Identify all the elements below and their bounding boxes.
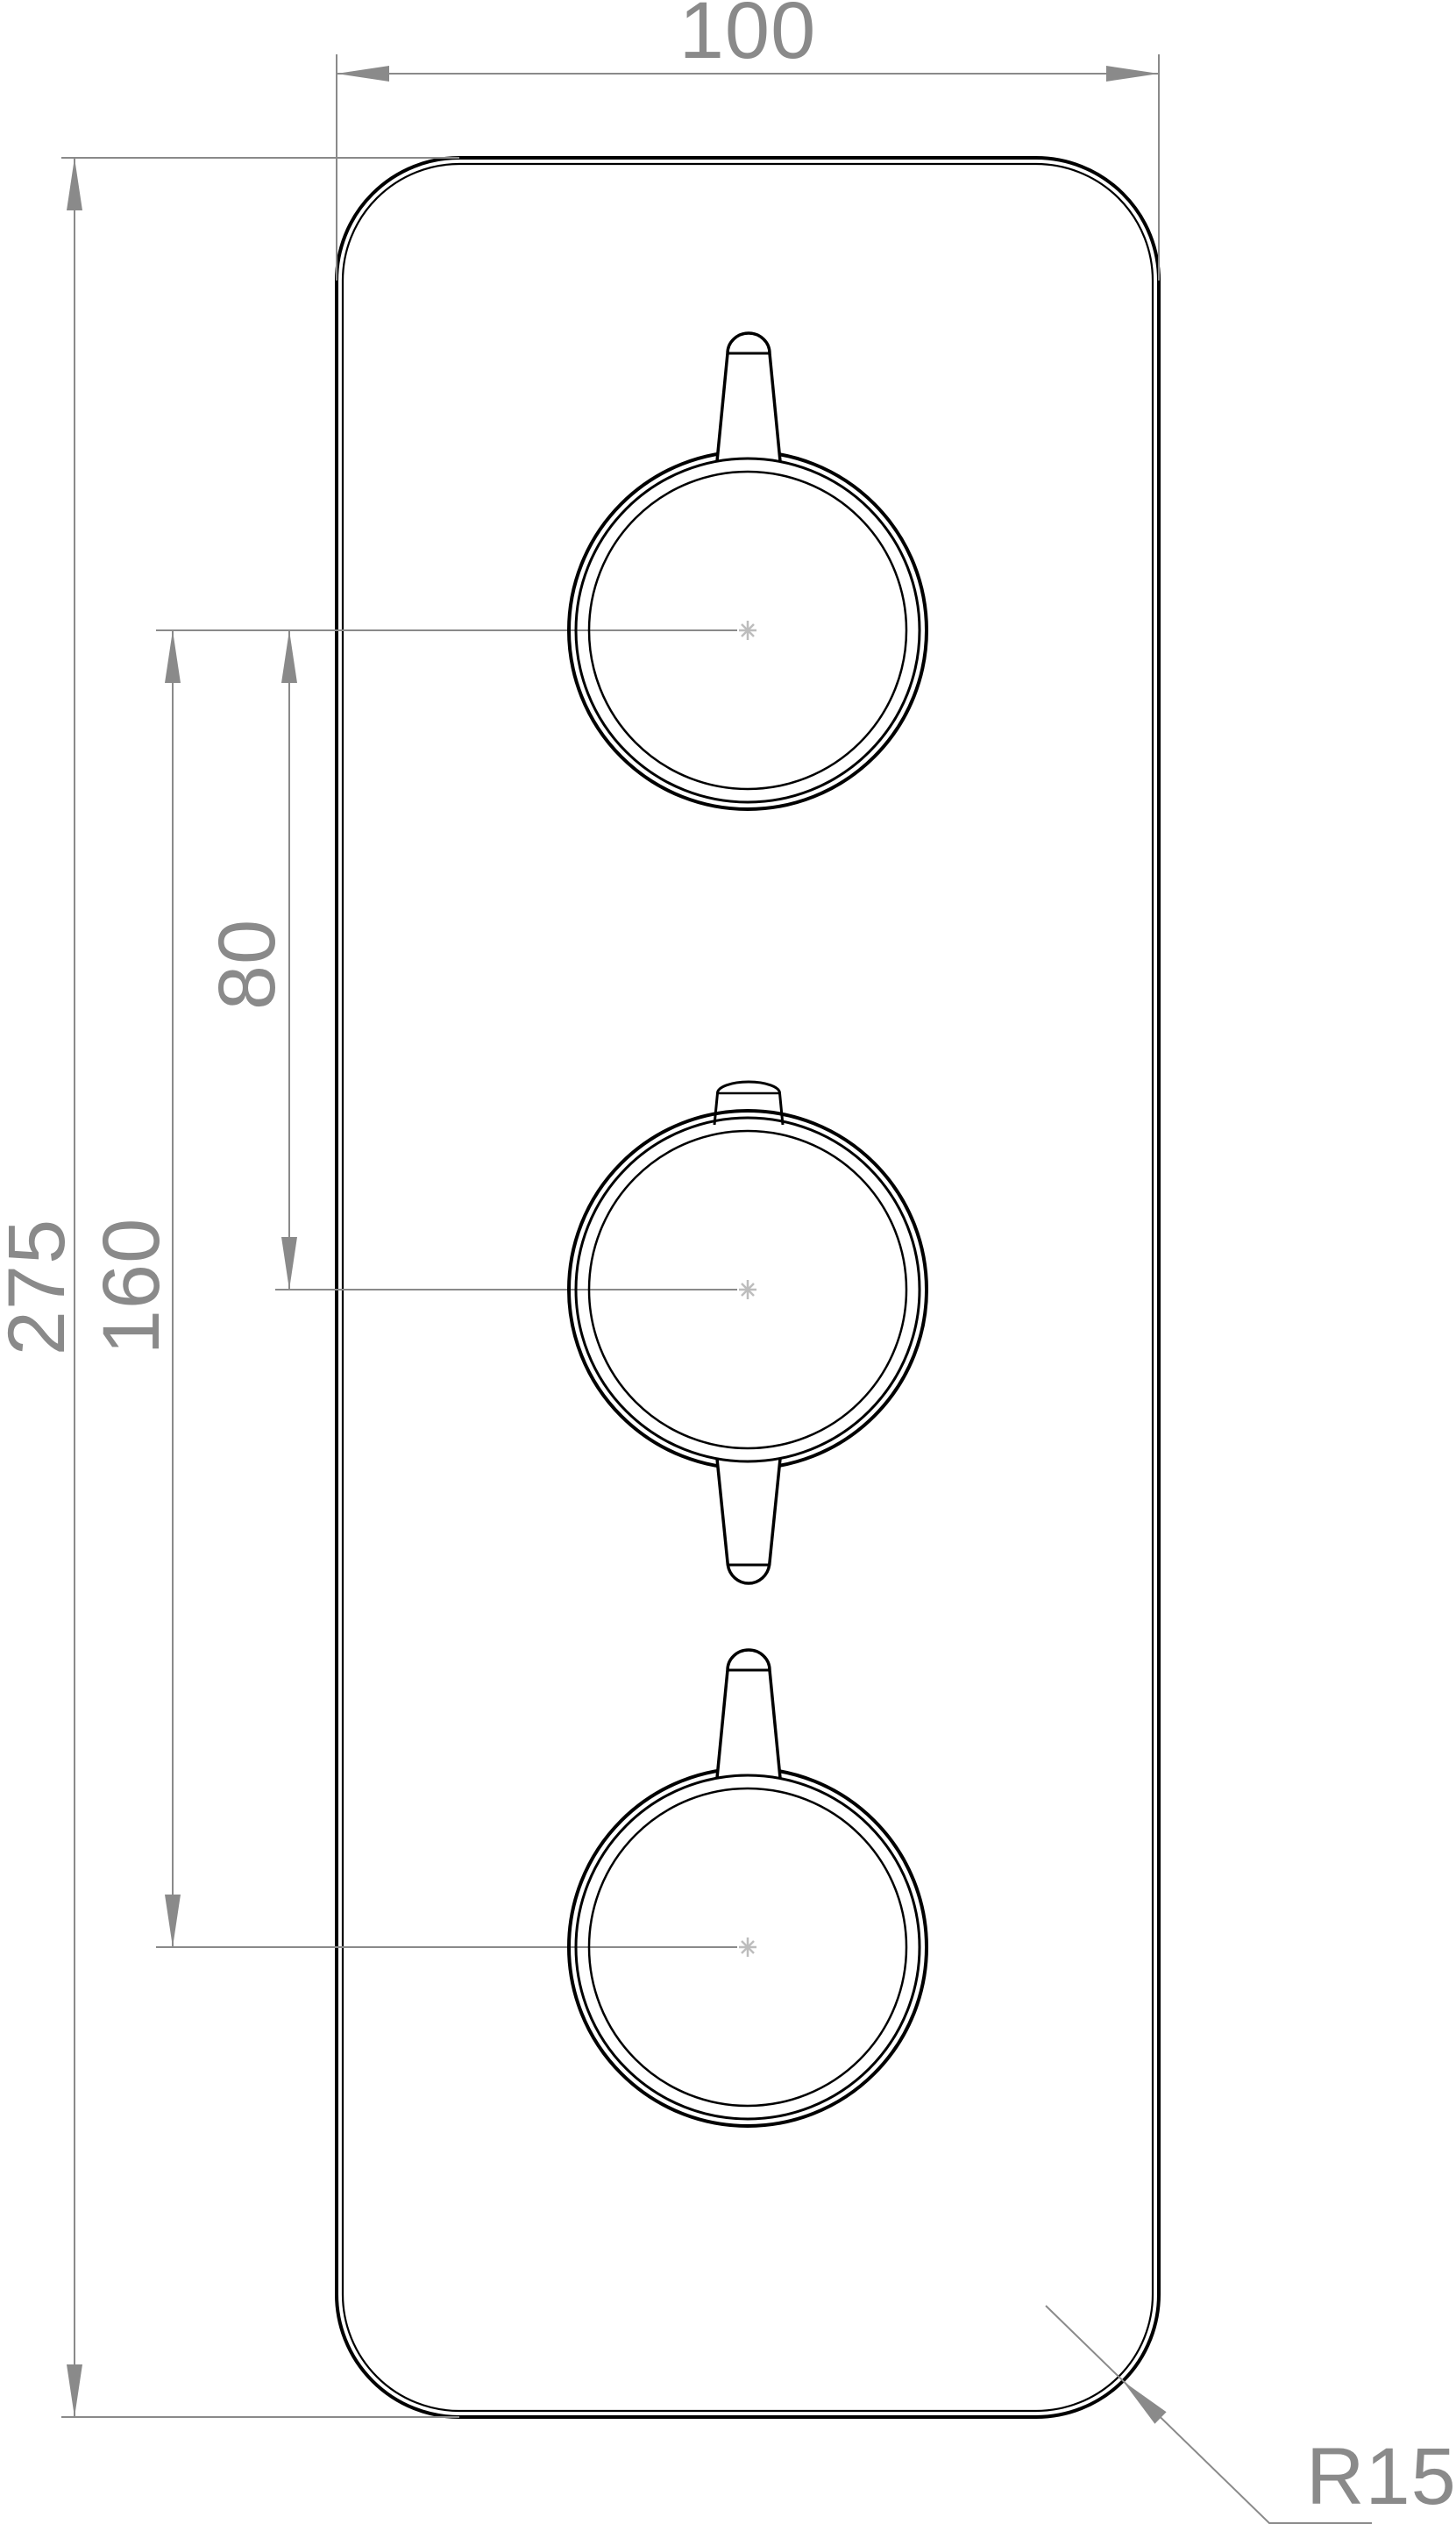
dim-width-label: 100	[679, 0, 817, 75]
knob-middle	[569, 1082, 927, 1583]
dim-width-arrow-left	[337, 66, 389, 82]
center-leader-lines	[156, 630, 737, 1947]
dim-height-arrow-bottom	[67, 2364, 82, 2417]
dim-160-arrow-bottom	[165, 1895, 181, 1947]
dim-width-arrow-right	[1106, 66, 1159, 82]
dim-height-label: 275	[0, 1219, 82, 1356]
knob-top	[569, 333, 927, 809]
radius-label: R15	[1306, 2432, 1456, 2521]
dim-width: 100	[337, 0, 1159, 281]
dim-160-arrow-top	[165, 630, 181, 683]
knob-top-center-star-icon	[739, 621, 756, 640]
drawing-page: 100 275 160 80 R15	[0, 0, 1456, 2524]
knob-bottom-center-star-icon	[739, 1937, 756, 1957]
radius-callout: R15	[1046, 2306, 1456, 2523]
dim-height-arrow-top	[67, 158, 82, 210]
valve-technical-drawing: 100 275 160 80 R15	[0, 0, 1456, 2524]
dim-80-arrow-bottom	[281, 1237, 297, 1290]
dim-80-label: 80	[202, 919, 292, 1010]
radius-arrow	[1123, 2381, 1167, 2424]
dim-spacing-160: 160	[87, 630, 181, 1947]
knob-bottom	[569, 1650, 927, 2126]
knob-middle-center-star-icon	[739, 1280, 756, 1299]
dim-80-arrow-top	[281, 630, 297, 683]
dim-height: 275	[0, 158, 459, 2417]
dim-160-label: 160	[87, 1218, 176, 1355]
dim-spacing-80: 80	[202, 630, 297, 1290]
